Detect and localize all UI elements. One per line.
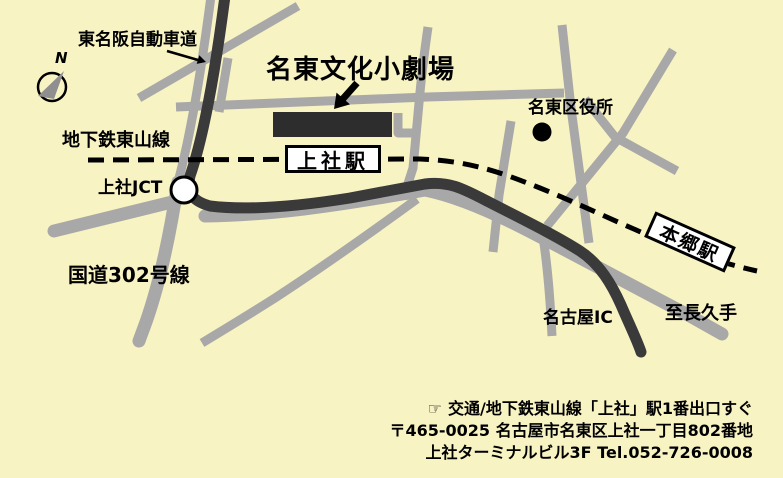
nagoya-ic-label: 名古屋IC (543, 309, 613, 329)
route302-label: 国道302号線 (68, 264, 190, 287)
compass-needle-icon (38, 71, 64, 99)
kamiyashiro-station-box: 上社駅 (285, 145, 381, 173)
jct-label: 上社JCT (98, 179, 162, 199)
access-map: 名東文化小劇場 東名阪自動車道 地下鉄東山線 上社JCT 国道302号線 名東区… (0, 0, 783, 478)
page-title: 名東文化小劇場 (266, 49, 455, 86)
jct-marker (171, 177, 197, 203)
ward-office-dot (533, 123, 552, 142)
compass-north-label: N (55, 49, 68, 67)
footer-building-tel-line: 上社ターミナルビル3F Tel.052-726-0008 (389, 442, 753, 464)
kamiyashiro-station-label: 上社駅 (297, 145, 369, 174)
expressway-arrow-shaft (167, 51, 198, 60)
road-west-of-jct (54, 201, 176, 231)
road-horizontal-above-theater (176, 93, 564, 107)
footer-info: ☞交通/地下鉄東山線「上社」駅1番出口すぐ 〒465-0025 名古屋市名東区上… (389, 398, 753, 464)
footer-access-line: ☞交通/地下鉄東山線「上社」駅1番出口すぐ (389, 398, 753, 420)
pointer-hand-icon: ☞ (428, 399, 442, 418)
road-vertical-mid (493, 121, 511, 252)
to-nagakute-label: 至長久手 (665, 304, 737, 325)
theater-building-block (273, 112, 392, 137)
footer-address-line: 〒465-0025 名古屋市名東区上社一丁目802番地 (389, 420, 753, 442)
expressway-label: 東名阪自動車道 (78, 31, 197, 51)
footer-access-text: 交通/地下鉄東山線「上社」駅1番出口すぐ (448, 399, 753, 418)
ward-office-label: 名東区役所 (528, 99, 613, 119)
subway-line-label: 地下鉄東山線 (62, 131, 170, 152)
road-ward-office-west (562, 25, 589, 243)
